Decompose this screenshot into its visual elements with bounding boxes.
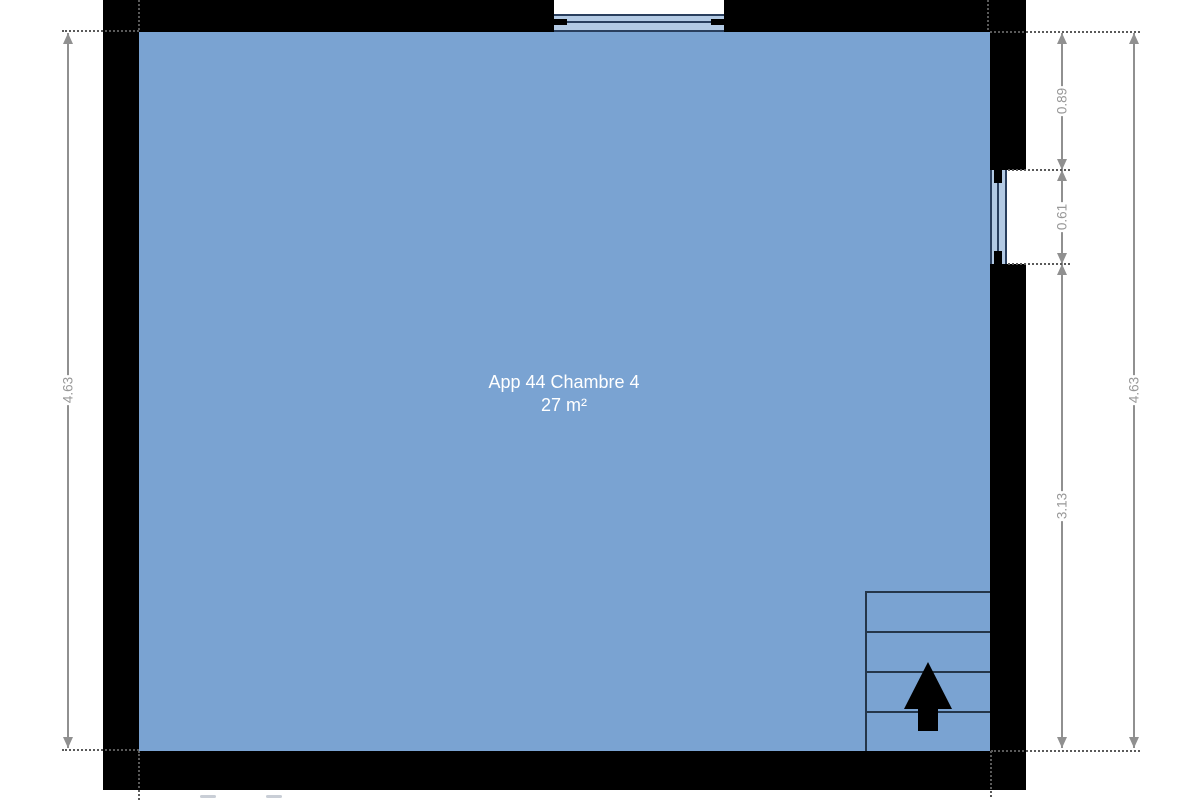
- extension-line-top-left: [62, 30, 139, 32]
- window-top-frame-center: [554, 21, 724, 23]
- extension-line-room-right-below: [990, 751, 992, 797]
- extension-line-bottom-right: [991, 750, 1140, 752]
- dim-arrow-left-top: [63, 33, 73, 44]
- stairs-up-arrow-icon: [904, 662, 952, 709]
- dim-label-right-window-to-wall: 3.13: [1052, 491, 1072, 521]
- dim-arrow-right-inner-top: [1057, 33, 1067, 44]
- wall-right-lower-segment: [990, 264, 1026, 790]
- dim-label-right-window: 0.61: [1052, 202, 1072, 232]
- window-right-opening: [1007, 170, 1026, 264]
- dim-label-right-total: 4.63: [1124, 375, 1144, 405]
- dim-arrow-bowtie-264-lower: [1057, 264, 1067, 275]
- extension-line-window-top: [1008, 169, 1070, 171]
- wall-bottom: [103, 751, 1026, 790]
- dim-arrow-right-total-top: [1129, 33, 1139, 44]
- room-name-label: App 44 Chambre 4: [414, 371, 714, 394]
- cutoff-mark-2: [266, 795, 282, 798]
- dim-arrow-left-bottom: [63, 737, 73, 748]
- dim-label-right-wall-to-window: 0.89: [1052, 86, 1072, 116]
- window-top-opening: [554, 0, 724, 15]
- window-top-frame-outer: [554, 14, 724, 16]
- stairs-tread-2: [865, 631, 990, 633]
- wall-right-upper-segment: [990, 0, 1026, 170]
- window-top: [554, 0, 724, 32]
- dim-label-left-total: 4.63: [58, 375, 78, 405]
- extension-line-room-left-below: [138, 751, 140, 800]
- wall-top-right-segment: [724, 0, 1026, 32]
- wall-top-left-segment: [103, 0, 554, 32]
- room-area-label: 27 m²: [414, 394, 714, 417]
- room-label-group: App 44 Chambre 4 27 m²: [414, 371, 714, 417]
- floor-plan: App 44 Chambre 4 27 m² 4.63 0.89 0.61 3.…: [0, 0, 1200, 800]
- extension-line-bottom-left: [62, 749, 139, 751]
- extension-line-window-bottom: [1008, 263, 1070, 265]
- dim-line-right-inner: [1061, 33, 1063, 748]
- stairs-tread-1: [865, 591, 990, 593]
- cutoff-mark-1: [200, 795, 216, 798]
- window-top-tick-right: [711, 19, 724, 25]
- extension-line-room-right-above: [987, 0, 989, 30]
- dim-arrow-bowtie-170-lower: [1057, 170, 1067, 181]
- window-top-frame-inner: [554, 30, 724, 32]
- window-right-frame-inner: [990, 170, 992, 264]
- extension-line-top-right: [990, 31, 1140, 33]
- stairs-up-arrow-shaft: [918, 706, 938, 731]
- extension-line-room-left-above: [138, 0, 140, 30]
- stairs: [865, 591, 990, 751]
- window-right-frame-outer: [1005, 170, 1007, 264]
- dim-arrow-right-inner-bottom: [1057, 737, 1067, 748]
- window-right: [990, 170, 1026, 264]
- wall-left: [103, 0, 139, 790]
- window-right-frame-center: [997, 170, 999, 264]
- window-right-tick-top: [994, 170, 1002, 183]
- window-top-tick-left: [554, 19, 567, 25]
- dim-arrow-right-total-bottom: [1129, 737, 1139, 748]
- window-right-tick-bottom: [994, 251, 1002, 264]
